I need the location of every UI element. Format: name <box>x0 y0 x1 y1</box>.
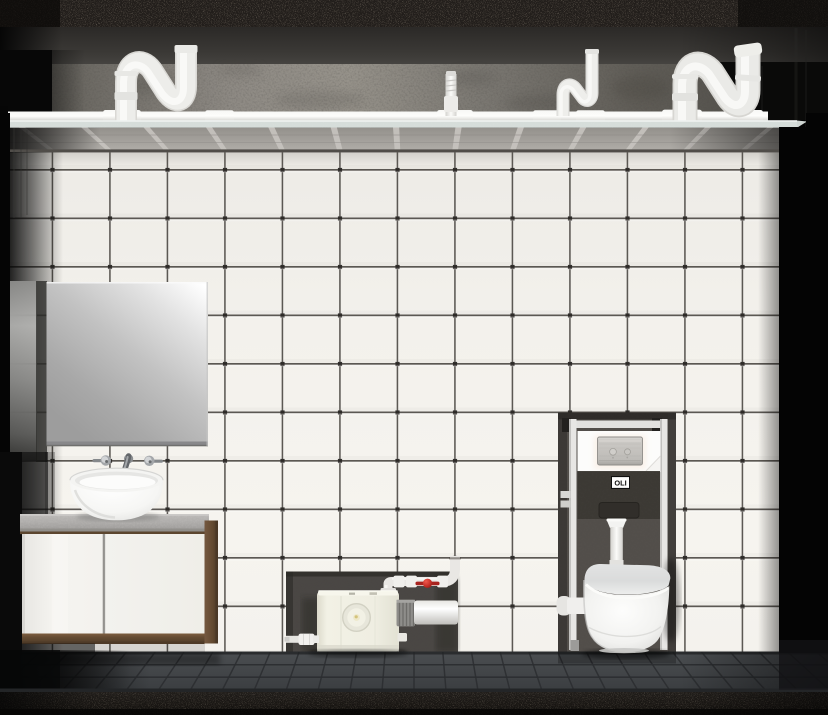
svg-text:OLI: OLI <box>614 478 626 487</box>
